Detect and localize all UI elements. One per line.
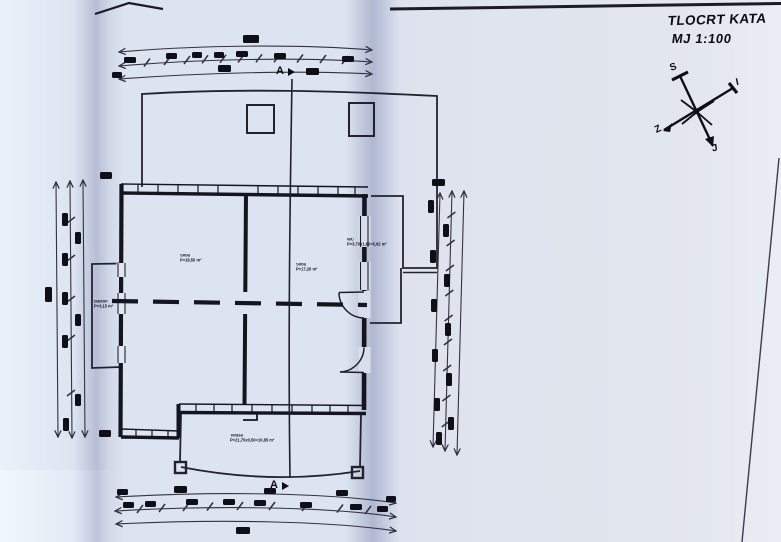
terrace-outline	[175, 414, 363, 478]
dimension-lines-right	[428, 179, 464, 455]
balcony-area: P=3,15 m²	[94, 305, 113, 310]
chimney-2	[349, 103, 374, 136]
section-marker-top: A	[276, 65, 284, 77]
compass-rose-icon	[663, 72, 737, 147]
side-annex-outline	[370, 268, 401, 323]
drawing-linework	[0, 0, 781, 542]
room-label-right: Soba P=17,20 m²	[296, 263, 317, 272]
sheet-scale: MJ 1:100	[671, 31, 733, 46]
room-label-terrace: Terasa P=21,75x0,50=10,85 m²	[230, 434, 274, 443]
chimney-1	[247, 105, 274, 133]
section-marker-bottom: A	[270, 479, 278, 491]
sheet-title: TLOCRT KATA	[667, 11, 767, 29]
room-right-area: P=17,20 m²	[296, 268, 317, 273]
dimension-lines-top	[112, 35, 372, 79]
scanned-floor-plan-sheet: TLOCRT KATA MJ 1:100 S I Z J A A Soba P=…	[0, 0, 781, 542]
room-label-side: WC P=3,70x1,60=5,92 m²	[347, 238, 387, 247]
section-arrow-top-icon	[288, 68, 295, 76]
section-arrow-bottom-icon	[282, 482, 289, 490]
terrace-area: P=21,75x0,50=10,85 m²	[230, 439, 274, 444]
section-cut-line	[289, 79, 292, 478]
dashed-beam-line	[112, 301, 367, 305]
room-left-area: P=18,50 m²	[180, 259, 201, 264]
dimension-numbers-bottom	[117, 486, 396, 534]
room-label-left: Soba P=18,50 m²	[180, 254, 201, 263]
dimension-numbers-right	[428, 179, 454, 445]
room-label-balcony: Balkon P=3,15 m²	[94, 300, 113, 309]
dimension-numbers-top	[112, 35, 354, 78]
dimension-lines-bottom	[115, 486, 396, 534]
room-side-area: P=3,70x1,60=5,92 m²	[347, 243, 387, 248]
